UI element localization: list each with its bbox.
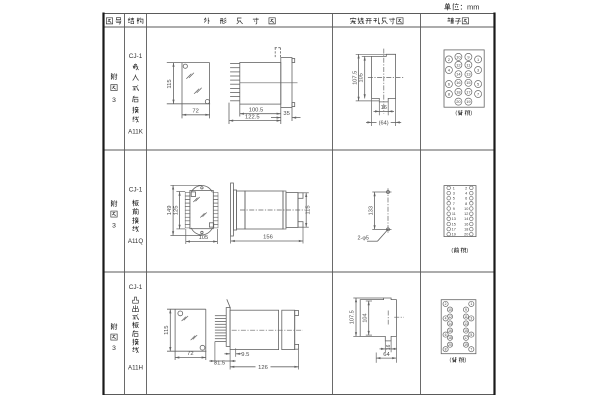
- svg-text:2-φ5: 2-φ5: [358, 236, 369, 242]
- svg-text:17: 17: [464, 336, 468, 340]
- svg-text:13: 13: [464, 322, 468, 326]
- svg-text:133: 133: [368, 206, 374, 215]
- svg-text:104: 104: [362, 313, 368, 322]
- svg-text:16: 16: [448, 329, 452, 333]
- svg-text:19: 19: [452, 233, 456, 237]
- svg-text:11: 11: [464, 315, 468, 319]
- svg-text:12: 12: [456, 62, 460, 67]
- svg-text:18: 18: [448, 336, 452, 340]
- svg-text:7: 7: [453, 202, 455, 206]
- svg-text:72: 72: [187, 351, 193, 357]
- svg-text:19: 19: [466, 99, 470, 104]
- svg-text:4: 4: [445, 317, 447, 321]
- svg-text:3: 3: [112, 97, 116, 104]
- svg-text:7: 7: [470, 347, 472, 351]
- svg-text:149: 149: [167, 206, 173, 216]
- svg-text:：mm: ：mm: [460, 2, 480, 11]
- svg-text:126: 126: [258, 365, 268, 371]
- svg-text:17: 17: [452, 228, 456, 232]
- svg-text:9: 9: [467, 54, 469, 59]
- svg-text:13: 13: [452, 217, 456, 221]
- svg-text:10: 10: [448, 308, 452, 312]
- svg-text:15: 15: [464, 329, 468, 333]
- svg-text:11: 11: [466, 62, 470, 67]
- svg-text:(: (: [449, 358, 451, 364]
- svg-text:14: 14: [464, 217, 468, 221]
- svg-text:(: (: [451, 248, 453, 254]
- svg-text:10: 10: [464, 207, 468, 211]
- svg-text:16: 16: [464, 222, 468, 226]
- svg-text:15: 15: [466, 80, 470, 85]
- svg-text:2: 2: [465, 186, 467, 190]
- svg-text:9.5: 9.5: [241, 352, 249, 358]
- svg-text:A11Q: A11Q: [128, 238, 144, 245]
- svg-text:CJ-1: CJ-1: [129, 284, 143, 291]
- svg-text:72: 72: [192, 108, 198, 114]
- svg-text:2: 2: [445, 302, 447, 306]
- svg-text:31.5: 31.5: [214, 360, 225, 366]
- svg-text:11: 11: [452, 212, 456, 216]
- svg-text:8: 8: [448, 91, 450, 96]
- svg-text:115: 115: [306, 205, 312, 214]
- svg-text:16: 16: [381, 105, 387, 111]
- svg-text:9: 9: [465, 308, 467, 312]
- svg-text:2: 2: [448, 57, 450, 62]
- svg-text:5: 5: [453, 197, 455, 201]
- svg-text:3: 3: [453, 192, 455, 196]
- svg-text:100.5: 100.5: [249, 107, 264, 113]
- svg-text:12: 12: [448, 315, 452, 319]
- svg-text:(: (: [455, 111, 457, 117]
- svg-text:105: 105: [199, 235, 209, 241]
- svg-text:): ): [464, 358, 466, 364]
- svg-text:15: 15: [452, 222, 456, 226]
- svg-text:9: 9: [453, 207, 455, 211]
- svg-text:18: 18: [456, 89, 460, 94]
- svg-text:3: 3: [477, 67, 479, 72]
- svg-text:64: 64: [383, 352, 390, 358]
- svg-text:122.5: 122.5: [245, 115, 260, 121]
- svg-text:1: 1: [470, 302, 472, 306]
- svg-text:8: 8: [445, 347, 447, 351]
- svg-text:13: 13: [466, 72, 470, 77]
- svg-text:A11H: A11H: [128, 365, 143, 372]
- svg-text:5: 5: [477, 81, 479, 86]
- svg-text:6: 6: [448, 81, 450, 86]
- svg-text:3: 3: [112, 345, 116, 352]
- svg-text:CJ-1: CJ-1: [129, 187, 143, 194]
- svg-text:): ): [466, 248, 468, 254]
- svg-text:156: 156: [263, 235, 273, 241]
- svg-text:5: 5: [470, 333, 472, 337]
- svg-text:3: 3: [470, 317, 472, 321]
- svg-text:16: 16: [386, 344, 392, 350]
- svg-text:): ): [470, 111, 472, 117]
- svg-text:16: 16: [456, 80, 460, 85]
- svg-text:105: 105: [358, 73, 364, 82]
- svg-text:125: 125: [173, 206, 179, 216]
- svg-text:CJ-1: CJ-1: [129, 53, 143, 60]
- svg-text:115: 115: [167, 79, 173, 88]
- svg-text:1: 1: [477, 57, 479, 62]
- svg-text:107.5: 107.5: [350, 310, 356, 324]
- svg-text:8: 8: [465, 202, 467, 206]
- svg-text:A11K: A11K: [128, 128, 144, 135]
- svg-text:115: 115: [164, 326, 170, 335]
- svg-text:(64): (64): [379, 121, 389, 127]
- svg-text:6: 6: [465, 197, 467, 201]
- svg-text:12: 12: [464, 212, 468, 216]
- svg-text:19: 19: [464, 343, 468, 347]
- svg-text:14: 14: [448, 322, 452, 326]
- svg-text:4: 4: [465, 192, 467, 196]
- svg-text:7: 7: [477, 91, 479, 96]
- svg-text:35: 35: [283, 111, 289, 117]
- svg-text:17: 17: [466, 89, 470, 94]
- svg-text:18: 18: [464, 228, 468, 232]
- svg-text:20: 20: [464, 233, 468, 237]
- svg-text:6: 6: [445, 333, 447, 337]
- svg-text:1: 1: [453, 186, 455, 190]
- svg-text:20: 20: [448, 343, 452, 347]
- svg-text:3: 3: [112, 222, 116, 229]
- svg-text:107.5: 107.5: [352, 71, 358, 85]
